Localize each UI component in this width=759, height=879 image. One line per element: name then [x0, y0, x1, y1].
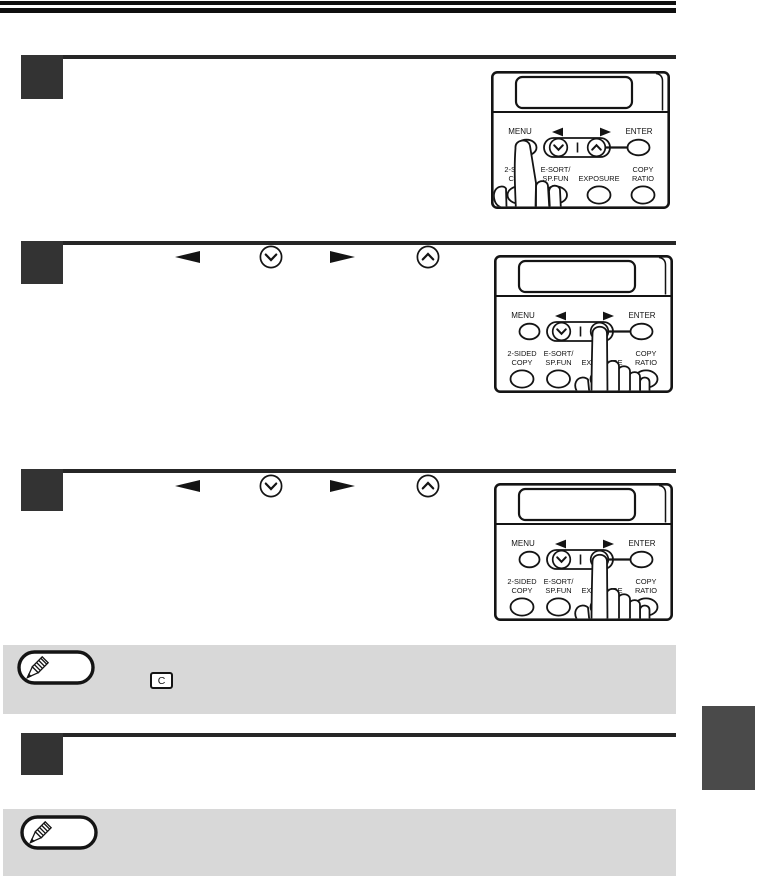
- exposure-button: [588, 186, 611, 203]
- two-sided-copy-button: [511, 598, 534, 615]
- note-box-2: [3, 809, 676, 876]
- svg-text:COPY: COPY: [636, 349, 657, 358]
- left-arrow-key-icon: [175, 480, 200, 492]
- step2-number-box: [21, 241, 63, 284]
- svg-text:2-SIDED: 2-SIDED: [507, 577, 536, 586]
- lcd-display: [519, 489, 635, 520]
- control-panel-illustration-step2: MENU ENTER 2-SIDED COPY E-SORT/ SP.FUN E…: [494, 255, 673, 393]
- step4-rule: [21, 733, 676, 737]
- menu-label: MENU: [511, 311, 535, 320]
- enter-button: [628, 140, 650, 156]
- enter-label: ENTER: [628, 539, 655, 548]
- note-icon-badge: [20, 815, 98, 850]
- page-edge-tab: [702, 706, 755, 790]
- menu-button: [520, 552, 540, 568]
- copy-ratio-button: [632, 186, 655, 203]
- svg-text:COPY: COPY: [512, 586, 533, 595]
- svg-text:RATIO: RATIO: [635, 586, 657, 595]
- menu-label: MENU: [511, 539, 535, 548]
- step1-number-box: [21, 55, 63, 99]
- inline-key-icons-step2: [170, 245, 450, 269]
- left-arrow-key-icon: [175, 251, 200, 263]
- svg-text:COPY: COPY: [512, 358, 533, 367]
- note-icon-badge: [17, 650, 95, 685]
- down-scroll-key-icon: [260, 246, 281, 267]
- note-box-1: [3, 645, 676, 714]
- enter-button: [631, 324, 653, 340]
- inline-key-icons-step3: [170, 474, 450, 498]
- top-rule-primary: [0, 1, 676, 5]
- two-sided-copy-button: [511, 370, 534, 387]
- clear-key-icon: C: [150, 672, 173, 689]
- right-arrow-key-icon: [330, 480, 355, 492]
- enter-button: [631, 552, 653, 568]
- menu-button: [520, 324, 540, 340]
- right-arrow-key-icon: [330, 251, 355, 263]
- lcd-display: [519, 261, 635, 292]
- enter-label: ENTER: [625, 127, 652, 136]
- step3-rule: [21, 469, 676, 473]
- esort-spfun-button: [547, 598, 570, 615]
- svg-text:E-SORT/: E-SORT/: [544, 349, 575, 358]
- svg-text:SP.FUN: SP.FUN: [545, 358, 571, 367]
- control-panel-illustration-step1: MENU ENTER 2-SIDED COPY E-SORT/ SP.FUN E…: [491, 71, 670, 209]
- up-scroll-button: [588, 139, 606, 157]
- step1-rule: [21, 55, 676, 59]
- svg-text:RATIO: RATIO: [632, 174, 654, 183]
- down-scroll-button: [553, 551, 571, 569]
- menu-label: MENU: [508, 127, 532, 136]
- step4-number-box: [21, 733, 63, 775]
- svg-text:2-SIDED: 2-SIDED: [507, 349, 536, 358]
- svg-text:SP.FUN: SP.FUN: [545, 586, 571, 595]
- control-panel-illustration-step3: MENU ENTER 2-SIDED COPY E-SORT/ SP.FUN E…: [494, 483, 673, 621]
- down-scroll-button: [553, 323, 571, 341]
- svg-text:EXPOSURE: EXPOSURE: [578, 174, 619, 183]
- svg-text:E-SORT/: E-SORT/: [544, 577, 575, 586]
- up-scroll-key-icon: [417, 475, 438, 496]
- down-scroll-key-icon: [260, 475, 281, 496]
- svg-text:COPY: COPY: [636, 577, 657, 586]
- manual-page: { "page": { "kind": "copier operation ma…: [0, 0, 759, 879]
- top-rule-secondary: [0, 8, 676, 13]
- esort-spfun-button: [547, 370, 570, 387]
- up-scroll-key-icon: [417, 246, 438, 267]
- enter-label: ENTER: [628, 311, 655, 320]
- lcd-display: [516, 77, 632, 108]
- svg-text:E-SORT/: E-SORT/: [541, 165, 572, 174]
- svg-text:COPY: COPY: [633, 165, 654, 174]
- down-scroll-button: [550, 139, 568, 157]
- svg-text:RATIO: RATIO: [635, 358, 657, 367]
- step3-number-box: [21, 469, 63, 511]
